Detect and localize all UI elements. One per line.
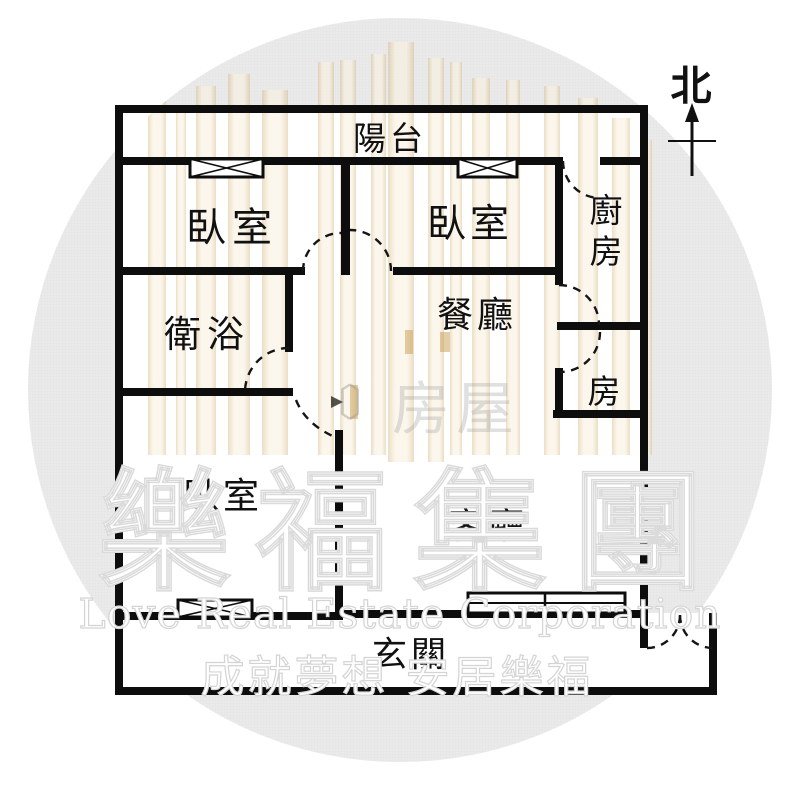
watermark-brand-cjk: 樂福集團 [98, 427, 730, 618]
door-arc-bedroom-2 [350, 230, 391, 271]
wall-segment [600, 157, 648, 165]
north-arrow [668, 103, 716, 176]
door-arc-room [560, 332, 600, 372]
wall-segment [555, 368, 563, 417]
door-arc-kitchen [559, 285, 599, 325]
window-bedroom-2 [458, 159, 517, 177]
watermark-brand-en: Love Real Estate Corporation [78, 590, 721, 638]
north-arrowhead-icon [685, 103, 699, 122]
wall-segment [341, 157, 350, 275]
wall-segment [285, 267, 293, 352]
wall-segment [115, 267, 305, 275]
door-arc-bedroom-1 [303, 233, 341, 271]
wall-segment [553, 410, 648, 418]
floor-plan-page: 〔 〕 房屋 [0, 0, 800, 789]
door-arc-bathroom [245, 348, 289, 392]
door-arc-kitchen-balcony [563, 161, 600, 198]
window-bedroom-1 [190, 159, 263, 177]
wall-segment [115, 388, 293, 396]
wall-segment [555, 157, 563, 285]
wall-segment [557, 322, 648, 330]
wall-segment [115, 105, 648, 113]
watermark-slogan: 成就夢想 安居樂福 [201, 641, 594, 705]
wall-segment [393, 267, 557, 275]
